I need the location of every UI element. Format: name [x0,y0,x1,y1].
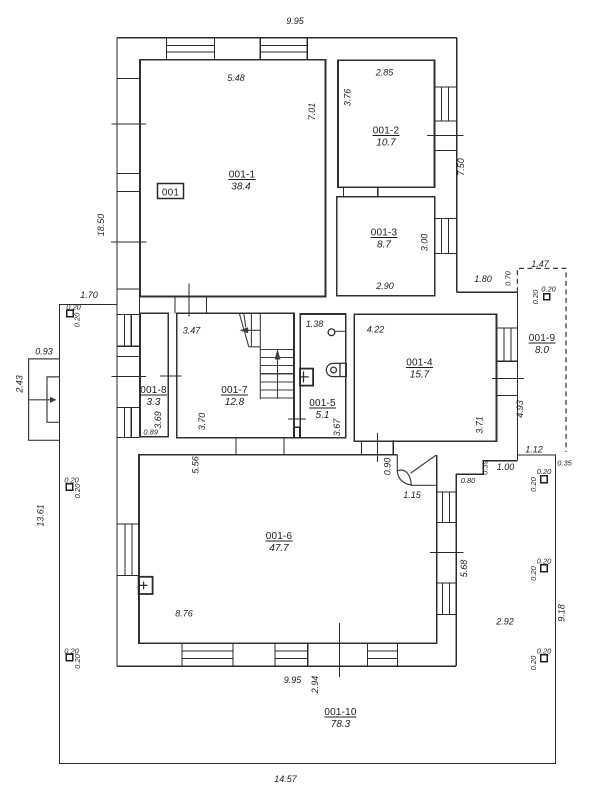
svg-text:5.48: 5.48 [227,73,245,83]
svg-text:3.71: 3.71 [475,416,485,434]
svg-text:0.20: 0.20 [529,655,538,670]
svg-text:9.95: 9.95 [286,16,305,26]
svg-text:1.12: 1.12 [525,445,543,455]
svg-text:1.15: 1.15 [403,490,422,500]
svg-text:0.93: 0.93 [35,347,53,357]
svg-text:0.89: 0.89 [143,428,158,437]
svg-text:4.93: 4.93 [515,400,525,418]
svg-text:8.0: 8.0 [535,345,549,356]
svg-text:0.20: 0.20 [531,289,540,304]
svg-text:15.7: 15.7 [410,370,430,381]
svg-text:4.22: 4.22 [367,325,385,335]
svg-text:1.00: 1.00 [497,462,515,472]
svg-text:0.70: 0.70 [504,270,513,285]
svg-text:3.67: 3.67 [332,418,342,437]
svg-text:001-2: 001-2 [373,126,400,137]
svg-text:3.70: 3.70 [197,413,207,431]
svg-text:001-6: 001-6 [266,531,293,542]
svg-text:3.00: 3.00 [420,234,430,252]
svg-text:14.57: 14.57 [274,774,298,784]
svg-text:1.47: 1.47 [531,259,550,269]
svg-text:2.92: 2.92 [495,617,514,627]
svg-text:001: 001 [162,188,180,199]
svg-text:0.20: 0.20 [541,285,556,294]
svg-text:001-7: 001-7 [221,385,248,396]
svg-text:0.20: 0.20 [64,476,79,485]
svg-text:1.70: 1.70 [80,290,98,300]
svg-text:2.85: 2.85 [375,68,395,78]
svg-text:3.76: 3.76 [343,89,353,107]
svg-text:13.61: 13.61 [36,504,46,527]
svg-text:5.1: 5.1 [316,410,330,421]
svg-text:3.47: 3.47 [183,326,202,336]
svg-text:9.95: 9.95 [284,675,303,685]
svg-text:8.76: 8.76 [175,609,193,619]
svg-text:5.56: 5.56 [191,456,201,474]
svg-text:0.20: 0.20 [73,483,82,498]
svg-text:0.20: 0.20 [73,653,82,668]
svg-text:001-10: 001-10 [324,707,357,718]
svg-text:001-8: 001-8 [140,385,167,396]
svg-text:10.7: 10.7 [376,138,396,149]
svg-text:3.3: 3.3 [147,397,161,408]
svg-text:2.94: 2.94 [310,676,320,695]
svg-text:2.43: 2.43 [15,375,25,394]
svg-text:0.20: 0.20 [529,565,538,580]
svg-text:001-1: 001-1 [229,170,256,181]
svg-text:3.69: 3.69 [153,411,163,429]
svg-text:1.80: 1.80 [474,274,492,284]
svg-text:0.20: 0.20 [72,312,81,327]
svg-text:18.50: 18.50 [96,214,106,237]
svg-text:0.35: 0.35 [557,459,572,468]
svg-text:0.90: 0.90 [383,458,393,476]
svg-text:0.39: 0.39 [481,459,490,474]
svg-text:0.20: 0.20 [537,557,552,566]
svg-text:0.80: 0.80 [461,476,476,485]
svg-text:001-4: 001-4 [406,358,433,369]
svg-text:38.4: 38.4 [231,182,251,193]
svg-text:5.68: 5.68 [459,560,469,578]
svg-text:47.7: 47.7 [269,543,289,554]
svg-text:0.20: 0.20 [537,647,552,656]
svg-text:8.7: 8.7 [377,240,391,251]
svg-text:7.50: 7.50 [456,158,466,176]
svg-text:7.01: 7.01 [307,103,317,121]
svg-text:78.3: 78.3 [331,719,351,730]
svg-text:9.18: 9.18 [557,604,567,622]
svg-text:0.20: 0.20 [537,467,552,476]
svg-text:2.90: 2.90 [375,281,394,291]
svg-text:1.38: 1.38 [306,319,324,329]
svg-text:0.20: 0.20 [64,647,79,656]
svg-text:0.20: 0.20 [529,476,538,491]
svg-text:001-3: 001-3 [371,228,398,239]
svg-text:12.8: 12.8 [225,397,245,408]
svg-text:0.20: 0.20 [66,303,81,312]
svg-text:001-9: 001-9 [529,333,556,344]
svg-text:001-5: 001-5 [309,398,336,409]
